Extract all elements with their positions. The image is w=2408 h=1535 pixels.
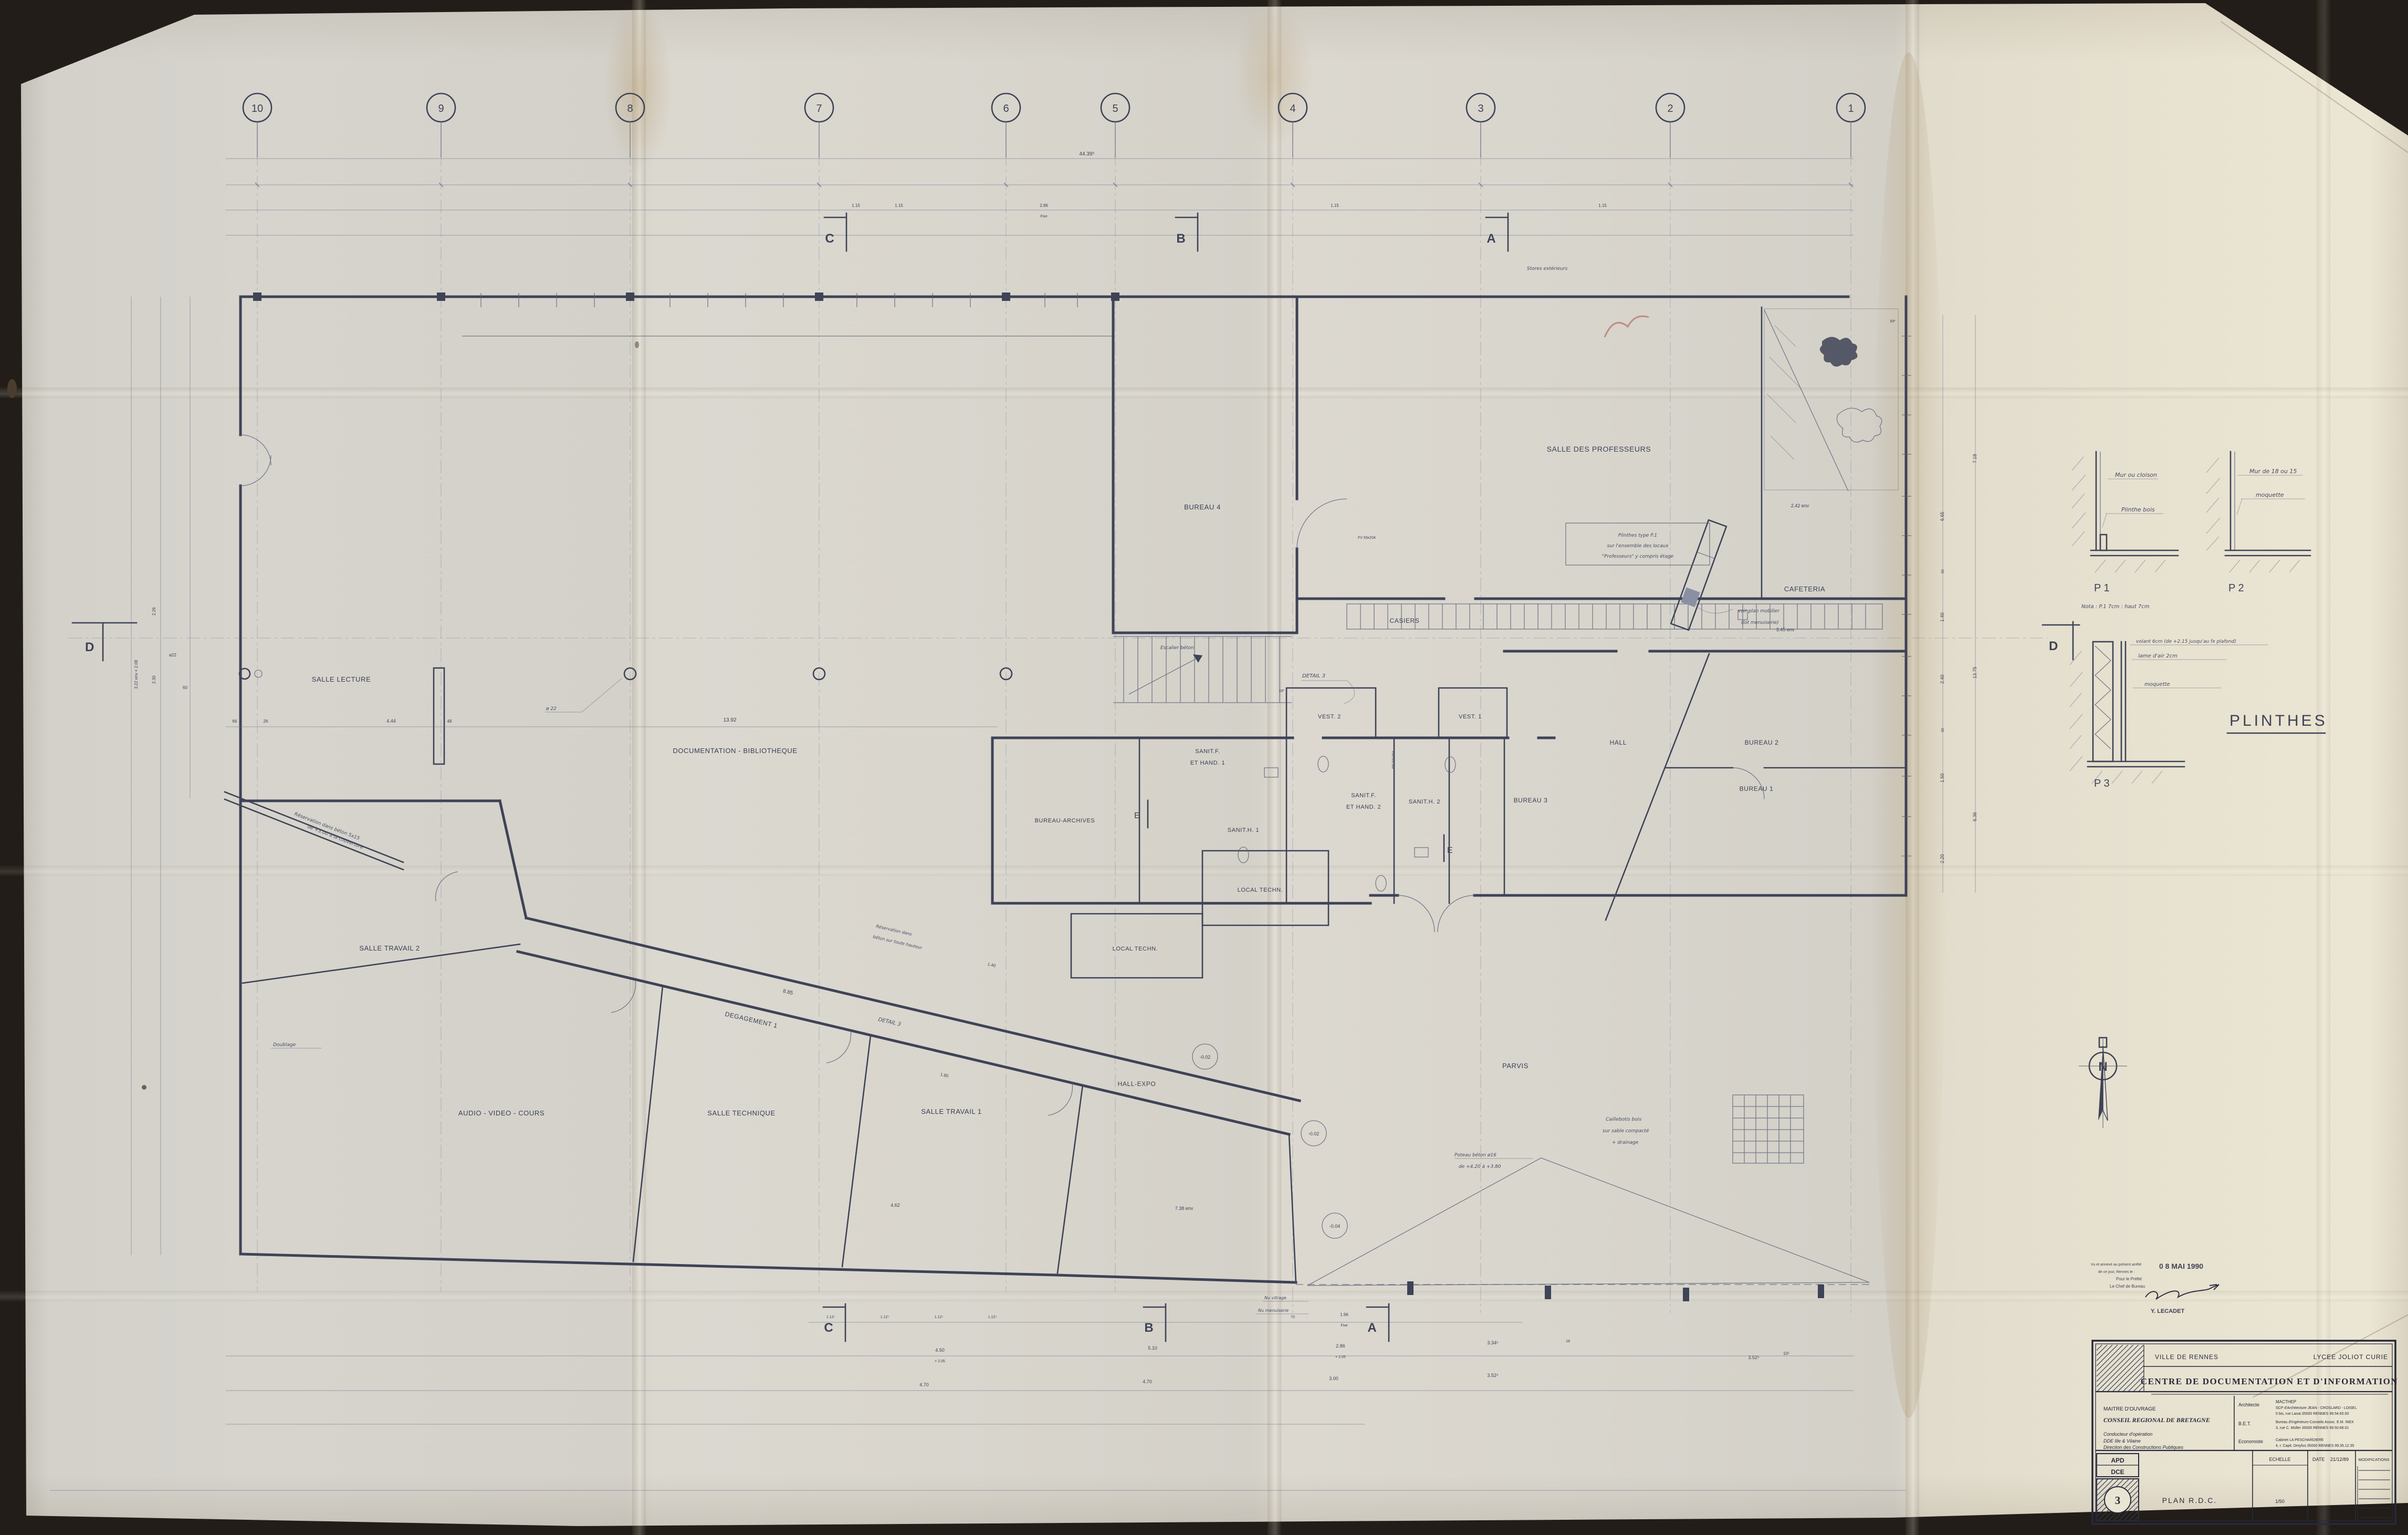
economist-value: Cabinet LA PESCHARDIERE: [2276, 1438, 2324, 1442]
dim: 3.00: [1329, 1376, 1338, 1381]
room-label: VEST. 1: [1459, 714, 1482, 720]
stamp-date: 0 8 MAI 1990: [2159, 1262, 2203, 1270]
detail-title-p1: P 1: [2094, 582, 2110, 594]
note-ep: EP: [1279, 690, 1284, 693]
dim: ø22: [169, 653, 176, 657]
room-labels: SALLE LECTURE DOCUMENTATION - BIBLIOTHEQ…: [312, 445, 1825, 1117]
detail-label: lame d'air 2cm: [2138, 653, 2177, 659]
dim: 3.52⁵: [1748, 1355, 1760, 1360]
titleblock-title: CENTRE DE DOCUMENTATION ET D'INFORMATION: [2141, 1376, 2398, 1386]
dim: 8.85: [782, 988, 794, 996]
room-label: BUREAU 4: [1184, 503, 1221, 511]
dim: 26: [264, 719, 268, 724]
dim: 3.45 env: [1776, 627, 1795, 632]
dim: 1.12⁵: [988, 1315, 997, 1319]
grid-number: 7: [816, 103, 822, 114]
titleblock-school: LYCEE JOLIOT CURIE: [2313, 1353, 2388, 1361]
sheet-number: 3: [2115, 1494, 2121, 1507]
room-label: SALLE LECTURE: [312, 675, 371, 683]
grid-number: 5: [1112, 103, 1118, 114]
grid-number: 10: [252, 103, 263, 114]
dim: 7.38 env: [1175, 1206, 1193, 1211]
north-arrow-icon: N: [2079, 1038, 2127, 1128]
dim: 5.10: [1148, 1345, 1157, 1351]
room-label: CAFETERIA: [1784, 585, 1825, 593]
detail-title-p3: P 3: [2094, 778, 2110, 789]
stamp-line: de ce jour, Rennes le :: [2098, 1270, 2135, 1274]
room-label: ET HAND. 1: [1190, 760, 1225, 766]
dim: 2.42 env: [1791, 503, 1809, 508]
titleblock-hatch: [2097, 1345, 2144, 1392]
dim: 48: [447, 719, 452, 724]
section-letter-a-bottom: A: [1367, 1321, 1376, 1335]
note-plinthes: Plinthes type P.1: [1618, 533, 1657, 538]
room-label: DEGAGEMENT 1: [724, 1010, 778, 1030]
economist-value: 4, r. Capit. Dreyfus 35000 RENNES 99.35.…: [2276, 1444, 2354, 1448]
room-label: HALL: [1610, 739, 1627, 746]
detail-label: Plinthe bois: [2121, 506, 2155, 513]
room-label: SANIT.F.: [1351, 792, 1376, 799]
door-tag: FV 93x204: [1358, 536, 1376, 540]
dim: 6.65: [1940, 511, 1945, 521]
room-label: LOCAL TECHN.: [1238, 887, 1283, 893]
bet-value: 3, rue C. Müller 35000 RENNES 99.50.68.0…: [2276, 1426, 2349, 1430]
dim: Fixe: [1341, 1324, 1347, 1328]
room-label: LOCAL TECHN.: [1113, 946, 1158, 952]
dim: 4.44: [386, 718, 396, 724]
note-caillebotis: + drainage: [1612, 1140, 1639, 1145]
section-letter-b-top: B: [1176, 232, 1185, 246]
note-caillebotis: Caillebotis bois: [1606, 1117, 1641, 1122]
note-phi22: ø 22: [546, 706, 557, 712]
dim: 6.36: [1972, 812, 1977, 821]
dim: 1.15: [895, 203, 903, 208]
note-poteau: Poteau béton ø16: [1454, 1152, 1496, 1158]
conductor-value1: DDE Ille & Vilaine: [2103, 1438, 2141, 1444]
architect-value: 5 bis, rue Lanai 35000 RENNES 99.54.65.0…: [2276, 1412, 2349, 1416]
architect-value: SCP d'Architecture JEAN - CROSLARD - LOI…: [2276, 1406, 2357, 1410]
prefecture-stamp: Vu et annexé au présent arrêté de ce jou…: [2091, 1262, 2219, 1314]
section-letter-d-left: D: [85, 640, 94, 654]
room-label: BUREAU 1: [1740, 785, 1774, 792]
economist-label: Economiste: [2238, 1439, 2263, 1444]
title-block: VILLE DE RENNES LYCEE JOLIOT CURIE CENTR…: [2092, 1341, 2398, 1524]
dim: × 2.05: [1335, 1355, 1346, 1359]
dim: 3.52⁵: [1487, 1373, 1499, 1378]
note-reservation: Réservation dans: [876, 923, 913, 936]
dim: 60: [183, 685, 187, 690]
dim: 2.26: [152, 607, 156, 615]
note-poteau: de +4.20 à +3.80: [1459, 1164, 1501, 1169]
room-label: SANIT.H. 1: [1228, 827, 1259, 833]
detail-label: volant 6cm (de +2.15 jusqu'au fx plafond…: [2136, 639, 2236, 644]
details-heading: PLINTHES: [2229, 712, 2328, 729]
owner-label: MAITRE D'OUVRAGE: [2103, 1406, 2156, 1412]
dim: 4.70: [919, 1382, 929, 1387]
room-label: BUREAU 3: [1514, 797, 1548, 804]
annotations-layer: Plinthes type P.1 sur l'ensemble des loc…: [271, 266, 1896, 1314]
dim: 1.80: [940, 1072, 949, 1078]
phase-dce: DCE: [2111, 1468, 2124, 1476]
level-mark: -0.04: [1329, 1224, 1341, 1229]
grid-number: 6: [1003, 103, 1009, 114]
room-label: Escalier béton: [1160, 645, 1194, 651]
stamp-line: Le Chef de Bureau: [2110, 1284, 2145, 1289]
room-label: VEST. 2: [1318, 714, 1341, 720]
grid-axes-layer: [50, 129, 2048, 1490]
dim: 2.20: [1940, 854, 1945, 863]
dim: 90: [1941, 569, 1945, 573]
section-letter-a-top: A: [1486, 232, 1495, 246]
dim: 1.40: [987, 962, 997, 968]
room-label: CASIERS: [1390, 617, 1420, 624]
dim: 1.15: [852, 203, 860, 208]
room-label: SALLE DES PROFESSEURS: [1547, 445, 1651, 453]
dim: 18: [1566, 1340, 1570, 1343]
dim: 1.15: [1331, 203, 1339, 208]
section-letter-d-right: D: [2049, 639, 2058, 653]
room-label: SALLE TECHNIQUE: [707, 1109, 775, 1117]
note-plinthes: "Professeurs" y compris étage: [1602, 554, 1674, 559]
note-caillebotis: sur sable compacté: [1603, 1128, 1649, 1134]
conductor-label: Conducteur d'opération: [2103, 1432, 2152, 1437]
grid-number: 3: [1478, 103, 1483, 114]
titleblock-city: VILLE DE RENNES: [2155, 1353, 2218, 1361]
room-label: SALLE TRAVAIL 1: [921, 1108, 981, 1115]
note-reservation: béton sur toute hauteur: [873, 934, 923, 950]
note-nu-vitrage: Nu vitrage: [1264, 1296, 1286, 1300]
owner-value: CONSEIL REGIONAL DE BRETAGNE: [2103, 1416, 2210, 1424]
room-label: PARVIS: [1502, 1062, 1528, 1070]
room-label: AUDIO - VIDEO - COURS: [458, 1109, 545, 1117]
stamp-line: Vu et annexé au présent arrêté: [2091, 1263, 2141, 1267]
note-detail3: DETAIL 3: [1302, 673, 1325, 679]
grid-number: 9: [438, 103, 444, 114]
phase-apd: APD: [2111, 1457, 2124, 1464]
room-label: DOCUMENTATION - BIBLIOTHEQUE: [673, 747, 797, 755]
grid-number: 2: [1667, 103, 1673, 114]
dim: 1.40: [1940, 612, 1945, 622]
modifications-label: MODIFICATIONS: [2358, 1457, 2389, 1462]
photographed-blueprint: { "plan": { "grid_bubbles": ["10","9","8…: [0, 0, 2408, 1535]
grid-number: 4: [1290, 103, 1295, 114]
note-ep: EP: [1890, 320, 1896, 323]
dim: 2.40: [1940, 674, 1945, 684]
plinth-details-panel: Mur ou cloison Plinthe bois P 1 Nota : P…: [2070, 452, 2328, 789]
room-label: SANIT.F.: [1195, 748, 1220, 755]
dim: 90: [1941, 728, 1945, 732]
room-label: HALL-EXPO: [1118, 1080, 1156, 1088]
dim: 1.12⁵: [881, 1315, 889, 1319]
detail-label: Mur ou cloison: [2115, 472, 2157, 478]
red-pencil-mark: [1605, 316, 1649, 337]
north-letter: N: [2098, 1060, 2107, 1074]
dimensions-layer: 44.39⁵ 1.15 1.15 2.86 Fixe 1.15 1.15 66 …: [134, 151, 1977, 1387]
note-mobilier: voir plan mobilier: [1738, 609, 1780, 614]
grid-number: 8: [627, 103, 633, 114]
dim: 10⁵: [1783, 1351, 1789, 1356]
dim: 13.75: [1972, 666, 1977, 678]
dim: Fixe: [1040, 215, 1047, 218]
dim: 44.39⁵: [1079, 151, 1094, 157]
walls-layer: [225, 293, 1911, 1301]
section-letter-b-bottom: B: [1144, 1321, 1153, 1335]
bet-value: Bureau d'Ingénieurs-Conseils Assoc. E.M.…: [2276, 1421, 2354, 1424]
section-letter-c-bottom: C: [824, 1321, 833, 1335]
note-doublage: Doublage: [273, 1042, 296, 1048]
conductor-value2: Direction des Constructions Publiques: [2103, 1445, 2184, 1450]
note-nu-menuiserie: Nu menuiserie: [1258, 1308, 1289, 1313]
room-label: SALLE TRAVAIL 2: [359, 944, 420, 952]
grid-number: 1: [1848, 103, 1854, 114]
dim: 2.86: [1336, 1343, 1345, 1349]
dim: 4.62: [891, 1203, 900, 1208]
architect-value: MACTHEP: [2276, 1400, 2296, 1404]
dim: 1.12⁵: [826, 1315, 835, 1319]
architect-label: Architecte: [2238, 1402, 2259, 1407]
level-mark: -0.02: [1308, 1131, 1320, 1136]
dim: 7.18: [1972, 454, 1977, 463]
detail-nota: Nota : P.1 7cm : haut 7cm: [2081, 604, 2150, 610]
scale-value: 1/50: [2275, 1499, 2285, 1504]
note-stores: Stores extérieurs: [1527, 266, 1568, 272]
detail-label: Mur de 18 ou 15: [2249, 468, 2297, 475]
dim: 1.15: [1598, 203, 1607, 208]
stamp-signature: [2145, 1285, 2219, 1299]
stamp-line: Pour le Préfet: [2116, 1277, 2142, 1281]
floor-plan-drawing: 10 9 8 7 6 5 4 3 2 1 C B A C B A D D E E: [0, 0, 2408, 1535]
section-letter-c-top: C: [825, 232, 834, 246]
dim: × 2.05: [935, 1360, 945, 1363]
room-label: BUREAU-ARCHIVES: [1035, 818, 1095, 824]
dim: 2.86: [1040, 203, 1048, 208]
stamp-name: Y. LECADET: [2151, 1308, 2184, 1314]
dim: 1.96: [1340, 1312, 1348, 1317]
room-label: SANIT.H. 2: [1409, 799, 1440, 805]
detail-label: moquette: [2144, 682, 2170, 687]
note-plinthes: sur l'ensemble des locaux: [1607, 544, 1669, 549]
section-letter-e: E: [1447, 846, 1453, 855]
bet-label: B.E.T.: [2238, 1421, 2251, 1426]
dim: 4.70: [1143, 1379, 1152, 1384]
section-markers: C B A C B A D D E E: [72, 213, 2079, 1341]
dim: 70: [1291, 1315, 1295, 1319]
grid-axis-bubbles: 10 9 8 7 6 5 4 3 2 1: [243, 93, 1865, 158]
plan-name: PLAN R.D.C.: [2162, 1496, 2217, 1505]
room-label: ET HAND. 2: [1346, 804, 1381, 810]
dim: 1.50: [1940, 773, 1945, 782]
detail-label: moquette: [2256, 492, 2284, 498]
date-value: 21/12/89: [2330, 1457, 2349, 1462]
dim: 4.50: [935, 1348, 945, 1353]
dim: 13.92: [723, 717, 736, 723]
door-tag: PP 93x204: [1392, 751, 1396, 769]
note-mobilier: (lot menuiserie): [1741, 620, 1779, 625]
room-label: BUREAU 2: [1745, 739, 1779, 746]
dim: 2.30: [152, 675, 156, 684]
detail-title-p2: P 2: [2228, 582, 2244, 594]
level-mark: -0.02: [1200, 1054, 1211, 1060]
date-label: DATE: [2312, 1457, 2325, 1462]
dim: 3.22 env × 2.08: [134, 660, 139, 689]
dim: 66: [233, 719, 237, 724]
note-detail3: DETAIL 3: [877, 1017, 901, 1028]
scale-label: ECHELLE: [2269, 1457, 2290, 1462]
dim: 3.34⁵: [1487, 1340, 1499, 1345]
dim: 1.12⁵: [935, 1315, 944, 1319]
